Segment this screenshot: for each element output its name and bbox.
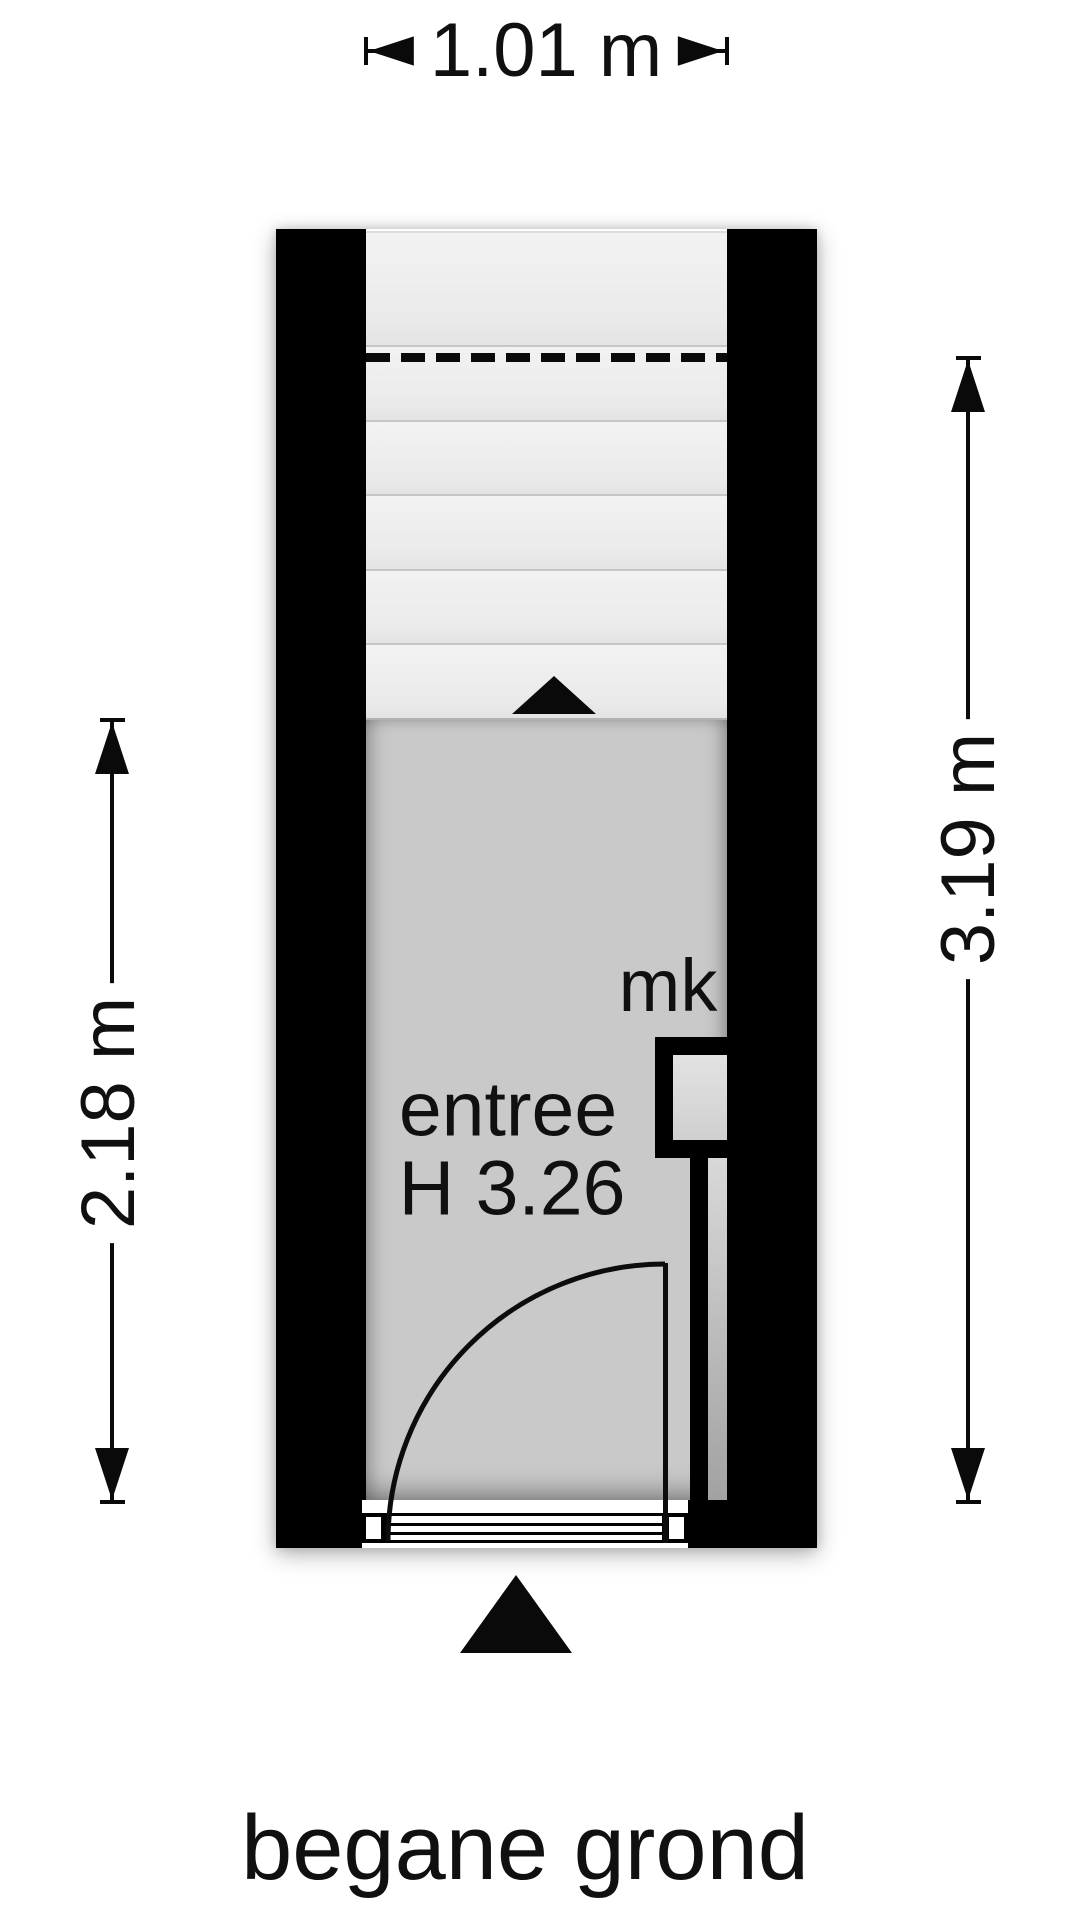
dimension-tick — [100, 1500, 125, 1504]
dimension-right-line — [966, 358, 970, 753]
room-label: entree — [399, 1072, 617, 1149]
room-height-label: H 3.26 — [399, 1151, 626, 1228]
arrowhead-down-icon — [95, 1448, 129, 1500]
mk-channel — [708, 1158, 727, 1500]
stair-tread — [366, 496, 727, 571]
arrowhead-down-icon — [951, 1448, 985, 1500]
dimension-right-line — [966, 942, 970, 1502]
dimension-top-label: 1.01 m — [414, 9, 678, 93]
meter-cupboard-label: mk — [619, 949, 718, 1023]
door-sill — [385, 1513, 665, 1543]
dimension-left-label: 2.18 m — [67, 983, 151, 1243]
arrowhead-up-icon — [95, 722, 129, 774]
arrowhead-right-icon — [671, 34, 723, 68]
stair-tread — [366, 571, 727, 645]
sill-line — [388, 1523, 662, 1526]
meter-cupboard — [655, 1037, 727, 1158]
wall-left-bottom — [276, 1500, 362, 1548]
dimension-tick — [956, 1500, 981, 1504]
mk-partition-wall — [690, 1158, 708, 1500]
arrowhead-up-icon — [951, 360, 985, 412]
dimension-tick — [725, 37, 729, 65]
wall-right-bottom — [688, 1500, 817, 1548]
entrance-arrow-icon — [460, 1575, 572, 1653]
stair-cut-dashed-line — [366, 353, 727, 362]
stair-tread — [366, 233, 727, 347]
door-leaf — [663, 1263, 668, 1543]
dimension-tick — [364, 37, 368, 65]
stair-direction-arrow-icon — [512, 676, 596, 714]
meter-cupboard-inner — [673, 1055, 727, 1140]
sill-line — [388, 1532, 662, 1535]
staircase — [366, 231, 727, 720]
wall-right — [727, 229, 817, 1500]
dimension-right-label: 3.19 m — [927, 719, 1011, 979]
wall-left — [276, 229, 366, 1500]
stair-tread — [366, 422, 727, 496]
door-jamb-left — [362, 1513, 385, 1543]
door-jamb-right — [665, 1513, 688, 1543]
floor-title: begane grond — [241, 1802, 809, 1894]
